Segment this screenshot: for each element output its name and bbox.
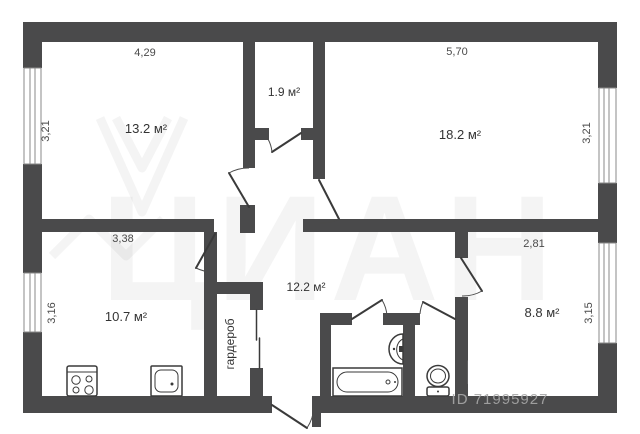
wall-closet-right	[313, 42, 325, 179]
wall-outer-left	[23, 42, 42, 68]
room-area-label: 1.9 м²	[268, 85, 300, 99]
wall-outer-left	[23, 332, 42, 396]
dim-label: 5,70	[446, 46, 467, 58]
wall-outer-right	[598, 42, 617, 88]
dim-label: 3,21	[581, 122, 593, 143]
window-icon	[599, 88, 616, 183]
dim-label: 4,29	[134, 47, 155, 59]
bathtub-icon	[333, 368, 402, 396]
window-icon	[24, 273, 41, 332]
wall-closet-bottom	[301, 128, 313, 140]
watermark-big-text: ЦИАН	[101, 164, 559, 332]
wall-bathroom-left	[320, 313, 331, 396]
stove-icon	[67, 366, 97, 396]
dim-label: 3,21	[40, 120, 52, 141]
wall-wardrobe-right	[250, 368, 263, 396]
wall-bath-toilet-divider	[403, 325, 415, 396]
room-area-label: 8.8 м²	[525, 305, 561, 320]
window-icon	[599, 243, 616, 343]
wall-entry-stub	[312, 413, 321, 427]
wall-outer-right	[598, 183, 617, 243]
wall-outer-bottom-left	[23, 396, 272, 413]
dim-label: 3,38	[112, 233, 133, 245]
wall-hall-room-divider	[455, 232, 468, 258]
wall-closet-left	[243, 42, 255, 168]
wall-bathroom-top	[383, 313, 420, 325]
floorplan-image: ЦИАН	[0, 0, 640, 434]
watermark-logo-text: Циан	[465, 354, 550, 392]
room-area-label: 18.2 м²	[439, 127, 482, 142]
wall-door-stub	[240, 205, 255, 233]
wall-divider-right	[303, 219, 598, 232]
room-area-label: 12.2 м²	[287, 280, 326, 294]
dim-label: 3,15	[583, 302, 595, 323]
room-area-label: 13.2 м²	[125, 121, 168, 136]
dim-label: 2,81	[523, 238, 544, 250]
dim-label: 3,16	[46, 302, 58, 323]
wall-outer-top	[23, 22, 617, 42]
window-icon	[24, 68, 41, 164]
toilet-icon	[427, 366, 449, 397]
wardrobe-label: гардероб	[223, 318, 237, 369]
watermark-id-group: Циан ID 71995927	[452, 354, 551, 408]
wall-closet-bottom	[255, 128, 269, 140]
wall-outer-left	[23, 164, 42, 273]
wall-divider-left	[42, 219, 214, 232]
wall-wardrobe-right	[250, 282, 263, 310]
floorplan-svg: ЦИАН	[0, 0, 640, 434]
wall-wardrobe-left	[204, 232, 217, 396]
wall-outer-right	[598, 343, 617, 396]
watermark-listing-id: ID 71995927	[452, 391, 549, 408]
kitchen-sink-icon	[151, 366, 182, 396]
room-area-label: 10.7 м²	[105, 309, 148, 324]
wall-bathroom-top	[320, 313, 352, 325]
